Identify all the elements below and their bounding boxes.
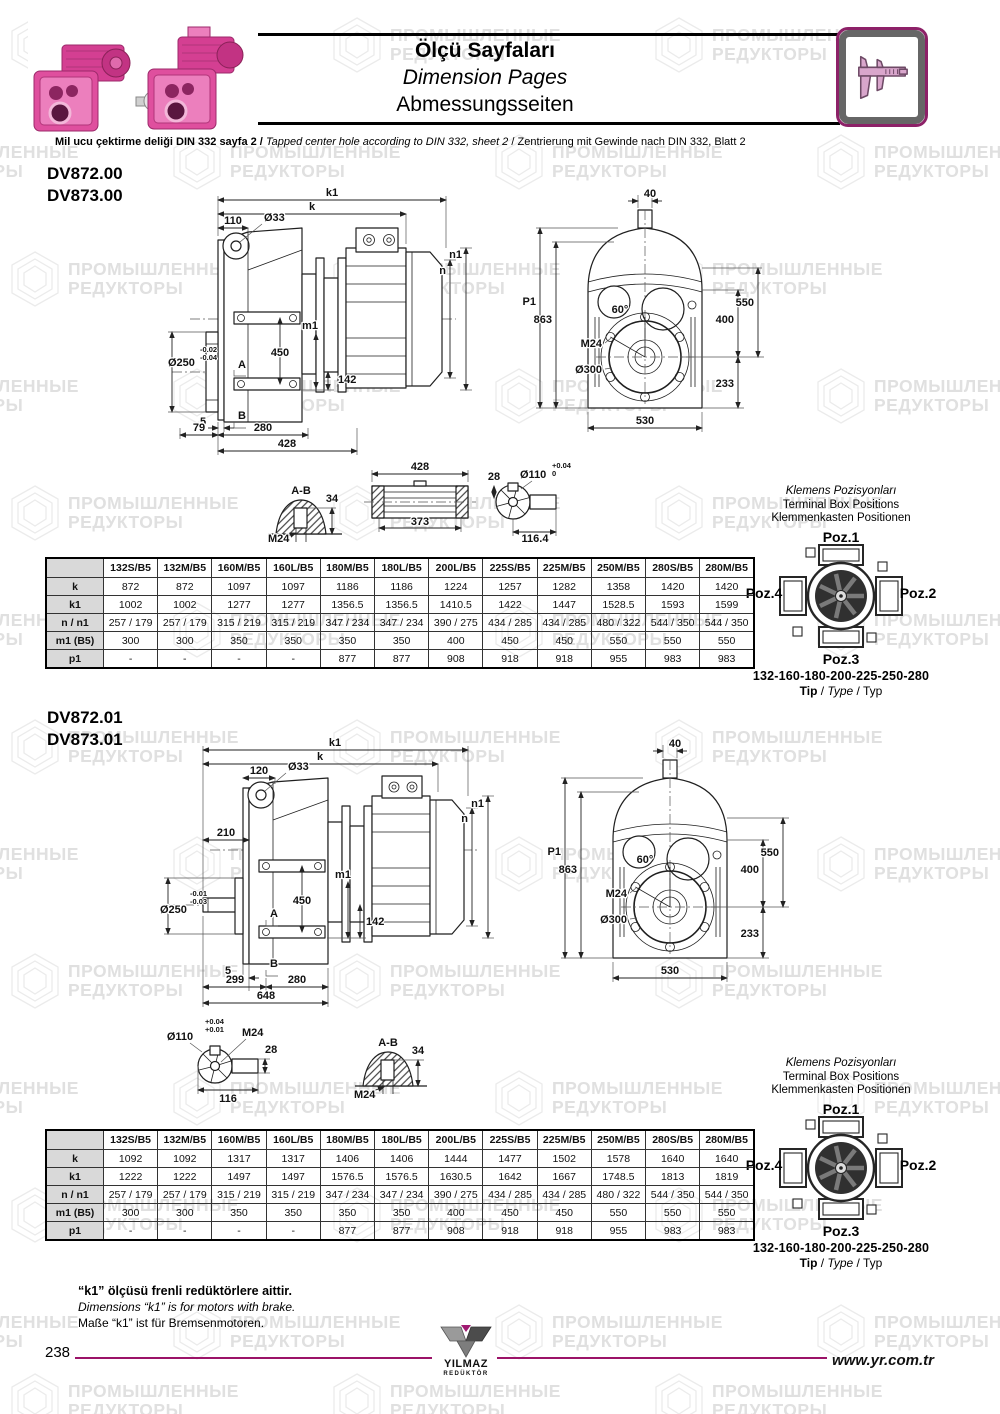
dimension-value-cell: 350	[212, 632, 266, 650]
dimension-value-cell: 872	[158, 578, 212, 596]
dim-label: 142	[338, 374, 356, 386]
row-label: k1	[46, 1168, 104, 1186]
dim-label: 116.4	[522, 533, 550, 545]
column-header: 280M/B5	[700, 558, 754, 578]
dim-label: 299	[226, 974, 244, 986]
motor-fan-top-view	[766, 1115, 916, 1221]
dimension-value-cell: 1630.5	[429, 1168, 483, 1186]
page-title: Ölçü Sayfaları Dimension Pages Abmessung…	[290, 37, 680, 118]
tolerance-label: 0	[552, 469, 556, 478]
poz3-label: Poz.3	[748, 651, 934, 667]
row-label: n / n1	[46, 1186, 104, 1204]
dimension-table-dv872-00: 132S/B5132M/B5160M/B5160L/B5180M/B5180L/…	[45, 557, 755, 669]
column-header: 280S/B5	[646, 1130, 700, 1150]
model-labels-dv872-01: DV872.01 DV873.01	[47, 707, 123, 751]
dimension-value-cell: 1186	[320, 578, 374, 596]
column-header: 132M/B5	[158, 1130, 212, 1150]
dimension-value-cell: 1420	[646, 578, 700, 596]
dimension-value-cell: 544 / 350	[700, 614, 754, 632]
dimension-value-cell: -	[104, 1222, 158, 1241]
watermark: ПРОМЫШЛЕННЫЕРЕДУКТОРЫ	[492, 1303, 723, 1361]
dimension-value-cell: 918	[483, 650, 537, 669]
dimension-value-cell: -	[158, 1222, 212, 1241]
terminal-heading-german: Klemmenkasten Positionen	[771, 1084, 910, 1096]
dim-label: Ø250	[168, 357, 195, 369]
dimension-value-cell: 550	[646, 1204, 700, 1222]
fan-diagram-wrap	[766, 1115, 916, 1226]
watermark-text: ПРОМЫШЛЕННЫЕРЕДУКТОРЫ	[552, 1313, 723, 1351]
watermark: ПРОМЫШЛЕННЫЕРЕДУКТОРЫ	[0, 367, 79, 425]
model-label: DV872.01	[47, 707, 123, 729]
dimension-value-cell: 1317	[212, 1150, 266, 1168]
column-header: 180M/B5	[320, 1130, 374, 1150]
front-view-gearbox	[613, 760, 727, 958]
dimension-value-cell: 315 / 219	[266, 1186, 320, 1204]
terminal-heading-english: Terminal Box Positions	[783, 1071, 899, 1083]
footnote-english: Dimensions “k1” is for motors with brake…	[78, 1299, 295, 1315]
dimension-pages-icon-frame	[836, 27, 928, 127]
dimension-value-cell: 1277	[212, 596, 266, 614]
dim-label: 428	[411, 461, 429, 473]
dimension-value-cell: 877	[320, 650, 374, 669]
watermark: ПРОМЫШЛЕННЫЕРЕДУКТОРЫ	[8, 1372, 239, 1414]
dimension-value-cell: 390 / 275	[429, 614, 483, 632]
dimension-value-cell: 983	[700, 650, 754, 669]
dimension-value-cell: 1640	[646, 1150, 700, 1168]
tolerance-label: -0.03	[190, 897, 207, 906]
dimension-value-cell: 1477	[483, 1150, 537, 1168]
dim-label: n1	[471, 798, 484, 810]
dim-label: M24	[581, 338, 603, 350]
angle-label: 60°	[637, 854, 654, 866]
footnote-turkish: “k1” ölçüsü frenli redüktörlere aittir.	[78, 1283, 295, 1299]
watermark-hexagon-icon	[8, 484, 62, 542]
dimension-value-cell: 1497	[212, 1168, 266, 1186]
dimension-value-cell: 877	[375, 1222, 429, 1241]
watermark-text: ПРОМЫШЛЕННЫЕРЕДУКТОРЫ	[712, 1382, 883, 1414]
watermark-text: ПРОМЫШЛЕННЫЕРЕДУКТОРЫ	[874, 377, 1000, 415]
watermark-text: ПРОМЫШЛЕННЫЕРЕДУКТОРЫ	[0, 1079, 79, 1117]
detail-label: A-B	[378, 1037, 398, 1049]
dim-label: 530	[661, 965, 679, 977]
watermark-text: ПРОМЫШЛЕННЫЕРЕДУКТОРЫ	[0, 845, 79, 883]
section-marker: B	[238, 410, 246, 422]
column-header: 225S/B5	[483, 558, 537, 578]
type-german: Typ	[863, 1256, 882, 1270]
dim-label: 116	[219, 1093, 237, 1105]
dimension-value-cell: 1406	[320, 1150, 374, 1168]
column-header: 280S/B5	[646, 558, 700, 578]
column-header: 160M/B5	[212, 558, 266, 578]
dimension-value-cell: 983	[700, 1222, 754, 1241]
watermark-hexagon-icon	[330, 1372, 384, 1414]
column-header: 160L/B5	[266, 558, 320, 578]
dim-label: 210	[217, 827, 235, 839]
dimension-value-cell: 1406	[375, 1150, 429, 1168]
dimension-value-cell: 877	[320, 1222, 374, 1241]
dimension-value-cell: 350	[212, 1204, 266, 1222]
dimension-value-cell: 450	[483, 632, 537, 650]
dimension-value-cell: 350	[320, 632, 374, 650]
dimension-value-cell: 918	[537, 650, 591, 669]
title-english: Dimension Pages	[290, 64, 680, 91]
column-header: 200L/B5	[429, 558, 483, 578]
dimension-value-cell: 1528.5	[591, 596, 645, 614]
dim-label: 28	[265, 1044, 277, 1056]
dim-label: Ø250	[160, 904, 187, 916]
tolerance-label: +0.01	[205, 1025, 224, 1034]
type-turkish: Tip	[800, 684, 818, 698]
dimension-value-cell: 1420	[700, 578, 754, 596]
type-range: 132-160-180-200-225-250-280	[748, 669, 934, 683]
dimension-value-cell: 1222	[104, 1168, 158, 1186]
dimension-value-cell: 1576.5	[320, 1168, 374, 1186]
yilmaz-logo-icon	[438, 1325, 494, 1358]
dimension-value-cell: 450	[483, 1204, 537, 1222]
row-label: k1	[46, 596, 104, 614]
dimension-value-cell: 257 / 179	[104, 1186, 158, 1204]
front-view-gearbox	[588, 210, 702, 408]
dimension-value-cell: -	[212, 1222, 266, 1241]
terminal-box-positions-1: Klemens Pozisyonları Terminal Box Positi…	[748, 485, 934, 701]
dimension-value-cell: 450	[537, 632, 591, 650]
dimension-value-cell: 908	[429, 650, 483, 669]
gear-motor-photos	[28, 15, 258, 137]
dim-label: Ø300	[600, 914, 627, 926]
dimension-value-cell: -	[266, 1222, 320, 1241]
dimension-value-cell: 1422	[483, 596, 537, 614]
dimension-value-cell: 480 / 322	[591, 1186, 645, 1204]
website-url: www.yr.com.tr	[832, 1352, 934, 1369]
title-german: Abmessungsseiten	[290, 91, 680, 118]
dim-label: 863	[559, 864, 577, 876]
column-header: 132S/B5	[104, 1130, 158, 1150]
dimension-value-cell: 350	[375, 632, 429, 650]
dimension-value-cell: 1576.5	[375, 1168, 429, 1186]
watermark-hexagon-icon	[8, 952, 62, 1010]
terminal-heading-turkish: Klemens Pozisyonları	[786, 485, 897, 497]
dimension-drawing-dv872-01: k1 k 120 Ø33 210 n1 n m1 450 Ø250 -0.01 …	[150, 732, 810, 1122]
model-label: DV873.01	[47, 729, 123, 751]
watermark-hexagon-icon	[8, 250, 62, 308]
type-english: Type	[827, 684, 853, 698]
column-header: 225M/B5	[537, 1130, 591, 1150]
table-corner-cell	[46, 1130, 104, 1150]
dim-label: 400	[741, 864, 759, 876]
title-turkish: Ölçü Sayfaları	[290, 37, 680, 64]
dim-label: 863	[534, 314, 552, 326]
detail-label: A-B	[291, 485, 311, 497]
dim-label: n	[439, 265, 446, 277]
dimension-value-cell: 390 / 275	[429, 1186, 483, 1204]
watermark-text: ПРОМЫШЛЕННЫЕРЕДУКТОРЫ	[874, 1313, 1000, 1351]
dimension-value-cell: 480 / 322	[591, 614, 645, 632]
dim-label: 110	[224, 215, 242, 227]
dimension-value-cell: 1097	[266, 578, 320, 596]
dim-label: 530	[636, 415, 654, 427]
dimension-value-cell: 550	[646, 632, 700, 650]
dimension-value-cell: 544 / 350	[646, 614, 700, 632]
dimension-value-cell: 1578	[591, 1150, 645, 1168]
dim-label: k	[317, 751, 324, 763]
dimension-value-cell: 955	[591, 1222, 645, 1241]
dimension-value-cell: 877	[375, 650, 429, 669]
dimension-value-cell: 347 / 234	[320, 614, 374, 632]
dimension-value-cell: 347 / 234	[320, 1186, 374, 1204]
dimension-value-cell: 434 / 285	[537, 1186, 591, 1204]
watermark: ПРОМЫШЛЕННЫЕРЕДУКТОРЫ	[814, 367, 1000, 425]
dimension-value-cell: 350	[320, 1204, 374, 1222]
watermark: ПРОМЫШЛЕННЫЕРЕДУКТОРЫ	[652, 1372, 883, 1414]
column-header: 180L/B5	[375, 558, 429, 578]
catalog-page: ПРОМЫШЛЕННЫЕРЕДУКТОРЫПРОМЫШЛЕННЫЕРЕДУКТО…	[0, 0, 1000, 1414]
caliper-icon	[853, 46, 911, 108]
dimension-value-cell: 1410.5	[429, 596, 483, 614]
dim-label: m1	[302, 320, 318, 332]
watermark: ПРОМЫШЛЕННЫЕРЕДУКТОРЫ	[814, 133, 1000, 191]
page-number: 238	[45, 1344, 70, 1361]
tolerance-label: -0.04	[200, 353, 218, 362]
dim-label: 40	[644, 188, 656, 200]
motor-fan-top-view	[766, 543, 916, 649]
dimension-value-cell: 1002	[104, 596, 158, 614]
type-separator: /	[817, 684, 827, 698]
type-separator: /	[853, 684, 863, 698]
footnote-german: Maße “k1” ist für Bremsenmotoren.	[78, 1315, 295, 1331]
column-header: 280M/B5	[700, 1130, 754, 1150]
row-label: m1 (B5)	[46, 1204, 104, 1222]
dim-label: M24	[606, 888, 628, 900]
column-header: 132S/B5	[104, 558, 158, 578]
dim-label: k1	[326, 187, 338, 199]
dim-label: k1	[329, 737, 341, 749]
column-header: 132M/B5	[158, 558, 212, 578]
dim-label: 550	[761, 847, 779, 859]
note-german: Zentrierung mit Gewinde nach DIN 332, Bl…	[518, 136, 746, 148]
dim-label: M24	[242, 1027, 264, 1039]
din-note: Mil ucu çektirme deliği DIN 332 sayfa 2 …	[55, 136, 746, 148]
dim-label: 120	[250, 765, 268, 777]
dim-label: Ø110	[167, 1031, 193, 1043]
k1-footnote: “k1” ölçüsü frenli redüktörlere aittir. …	[78, 1283, 295, 1331]
shaft-detail-views	[198, 1046, 427, 1094]
dimension-value-cell: 400	[429, 1204, 483, 1222]
dim-label: 34	[412, 1045, 425, 1057]
watermark: ПРОМЫШЛЕННЫЕРЕДУКТОРЫ	[814, 835, 1000, 893]
dim-label: 280	[288, 974, 306, 986]
column-header: 250M/B5	[591, 558, 645, 578]
type-german: Typ	[863, 684, 882, 698]
footer-rule-right	[497, 1357, 827, 1359]
dim-label: 34	[326, 493, 339, 505]
dimension-value-cell: 1186	[375, 578, 429, 596]
dimension-value-cell: 300	[104, 1204, 158, 1222]
column-header: 180L/B5	[375, 1130, 429, 1150]
type-range: 132-160-180-200-225-250-280	[748, 1241, 934, 1255]
dimension-value-cell: -	[158, 650, 212, 669]
terminal-heading-german: Klemmenkasten Positionen	[771, 512, 910, 524]
row-label: k	[46, 578, 104, 596]
watermark-hexagon-icon	[814, 367, 868, 425]
dimension-value-cell: 955	[591, 650, 645, 669]
column-header: 200L/B5	[429, 1130, 483, 1150]
watermark-hexagon-icon	[492, 1303, 546, 1361]
dim-label: 450	[293, 895, 311, 907]
dim-label: n1	[449, 249, 462, 261]
brand-subname: REDÜKTÖR	[436, 1369, 496, 1379]
dimension-value-cell: 347 / 234	[375, 1186, 429, 1204]
row-label: m1 (B5)	[46, 632, 104, 650]
dimension-value-cell: 1748.5	[591, 1168, 645, 1186]
dim-label: 400	[716, 314, 734, 326]
dim-label: k	[309, 201, 316, 213]
dim-label: Ø33	[288, 761, 309, 773]
dimension-value-cell: -	[266, 650, 320, 669]
dimension-value-cell: 1502	[537, 1150, 591, 1168]
dimension-value-cell: 983	[646, 650, 700, 669]
dimension-value-cell: 1222	[158, 1168, 212, 1186]
dimension-value-cell: 1642	[483, 1168, 537, 1186]
poz2-label: Poz.2	[896, 585, 940, 601]
dimension-value-cell: 257 / 179	[104, 614, 158, 632]
dim-label: 648	[257, 990, 275, 1002]
dimension-value-cell: 1277	[266, 596, 320, 614]
dimension-value-cell: 1356.5	[320, 596, 374, 614]
dimension-value-cell: 550	[591, 1204, 645, 1222]
dimension-value-cell: 1092	[104, 1150, 158, 1168]
dimension-value-cell: 1593	[646, 596, 700, 614]
poz2-label: Poz.2	[896, 1157, 940, 1173]
dim-label: M24	[354, 1089, 376, 1101]
watermark-text: ПРОМЫШЛЕННЫЕРЕДУКТОРЫ	[390, 1382, 561, 1414]
angle-label: 60°	[612, 304, 629, 316]
model-labels-dv872-00: DV872.00 DV873.00	[47, 163, 123, 207]
watermark-text: ПРОМЫШЛЕННЫЕРЕДУКТОРЫ	[552, 143, 723, 181]
type-label-line: Tip / Type / Typ	[748, 1256, 934, 1270]
dimension-value-cell: 434 / 285	[537, 614, 591, 632]
dim-label: 373	[411, 516, 429, 528]
dimension-value-cell: 300	[104, 632, 158, 650]
dim-label: 428	[278, 438, 296, 450]
dim-label: 40	[669, 738, 681, 750]
dim-label: 28	[488, 471, 500, 483]
watermark-text: ПРОМЫШЛЕННЫЕРЕДУКТОРЫ	[68, 1382, 239, 1414]
section-marker: A	[238, 359, 246, 371]
dimension-value-cell: 1224	[429, 578, 483, 596]
terminal-heading-english: Terminal Box Positions	[783, 499, 899, 511]
watermark-hexagon-icon	[814, 835, 868, 893]
dimension-value-cell: 918	[483, 1222, 537, 1241]
fan-diagram-wrap	[766, 543, 916, 654]
dimension-value-cell: 1358	[591, 578, 645, 596]
dim-label: M24	[268, 533, 290, 545]
dimension-value-cell: 300	[158, 632, 212, 650]
terminal-heading: Klemens Pozisyonları Terminal Box Positi…	[748, 485, 934, 526]
dimension-value-cell: 257 / 179	[158, 1186, 212, 1204]
section-marker: B	[270, 958, 278, 970]
dim-label: 280	[254, 422, 272, 434]
note-english: Tapped center hole according to DIN 332,…	[266, 136, 508, 148]
dimension-value-cell: 1667	[537, 1168, 591, 1186]
dimension-value-cell: 350	[375, 1204, 429, 1222]
terminal-heading-turkish: Klemens Pozisyonları	[786, 1057, 897, 1069]
type-english: Type	[827, 1256, 853, 1270]
dimension-value-cell: 350	[266, 632, 320, 650]
dimension-value-cell: 550	[700, 632, 754, 650]
dimension-value-cell: 1317	[266, 1150, 320, 1168]
side-view-gearmotor	[166, 776, 478, 964]
row-label: p1	[46, 1222, 104, 1241]
watermark-text: ПРОМЫШЛЕННЫЕРЕДУКТОРЫ	[230, 143, 401, 181]
type-turkish: Tip	[800, 1256, 818, 1270]
dim-label: 233	[716, 378, 734, 390]
icon-inner-frame	[839, 30, 925, 124]
dimension-value-cell: 1640	[700, 1150, 754, 1168]
table-corner-cell	[46, 558, 104, 578]
dimension-value-cell: 1356.5	[375, 596, 429, 614]
type-separator: /	[853, 1256, 863, 1270]
dim-label: 550	[736, 297, 754, 309]
terminal-heading: Klemens Pozisyonları Terminal Box Positi…	[748, 1057, 934, 1098]
dimension-value-cell: 1599	[700, 596, 754, 614]
type-label-line: Tip / Type / Typ	[748, 684, 934, 698]
watermark: ПРОМЫШЛЕННЫЕРЕДУКТОРЫ	[0, 835, 79, 893]
dimension-value-cell: -	[212, 650, 266, 669]
dimension-value-cell: 450	[537, 1204, 591, 1222]
dimension-value-cell: 1002	[158, 596, 212, 614]
note-turkish: Mil ucu çektirme deliği DIN 332 sayfa 2 …	[55, 136, 263, 148]
dim-label: n	[461, 813, 468, 825]
dimension-value-cell: 434 / 285	[483, 1186, 537, 1204]
dim-label: 233	[741, 928, 759, 940]
dim-label: P1	[523, 296, 536, 308]
watermark-hexagon-icon	[8, 1372, 62, 1414]
model-label: DV872.00	[47, 163, 123, 185]
dim-label: 79	[193, 422, 205, 434]
dimension-value-cell: 315 / 219	[212, 614, 266, 632]
watermark-hexagon-icon	[814, 133, 868, 191]
dimension-value-cell: 400	[429, 632, 483, 650]
model-label: DV873.00	[47, 185, 123, 207]
dimension-value-cell: 544 / 350	[646, 1186, 700, 1204]
dimension-value-cell: 1257	[483, 578, 537, 596]
column-header: 160M/B5	[212, 1130, 266, 1150]
dim-label: Ø300	[575, 364, 602, 376]
dim-label: 142	[366, 916, 384, 928]
dim-label: Ø33	[264, 212, 285, 224]
dimension-value-cell: 1444	[429, 1150, 483, 1168]
poz3-label: Poz.3	[748, 1223, 934, 1239]
column-header: 250M/B5	[591, 1130, 645, 1150]
dimension-value-cell: 350	[266, 1204, 320, 1222]
dimension-value-cell: 300	[158, 1204, 212, 1222]
section-marker: A	[270, 908, 278, 920]
watermark-text: ПРОМЫШЛЕННЫЕРЕДУКТОРЫ	[874, 845, 1000, 883]
watermark-hexagon-icon	[652, 1372, 706, 1414]
brand-name: YILMAZ	[436, 1359, 496, 1369]
dimension-value-cell: 1813	[646, 1168, 700, 1186]
watermark: ПРОМЫШЛЕННЫЕРЕДУКТОРЫ	[0, 1069, 79, 1127]
dim-label: P1	[548, 846, 561, 858]
dimension-value-cell: 434 / 285	[483, 614, 537, 632]
watermark-text: ПРОМЫШЛЕННЫЕРЕДУКТОРЫ	[0, 377, 79, 415]
yilmaz-logo: YILMAZ REDÜKTÖR	[436, 1325, 496, 1379]
column-header: 225M/B5	[537, 558, 591, 578]
dimension-value-cell: 872	[104, 578, 158, 596]
dimension-value-cell: 908	[429, 1222, 483, 1241]
dimension-value-cell: -	[104, 650, 158, 669]
dim-label: 450	[271, 347, 289, 359]
